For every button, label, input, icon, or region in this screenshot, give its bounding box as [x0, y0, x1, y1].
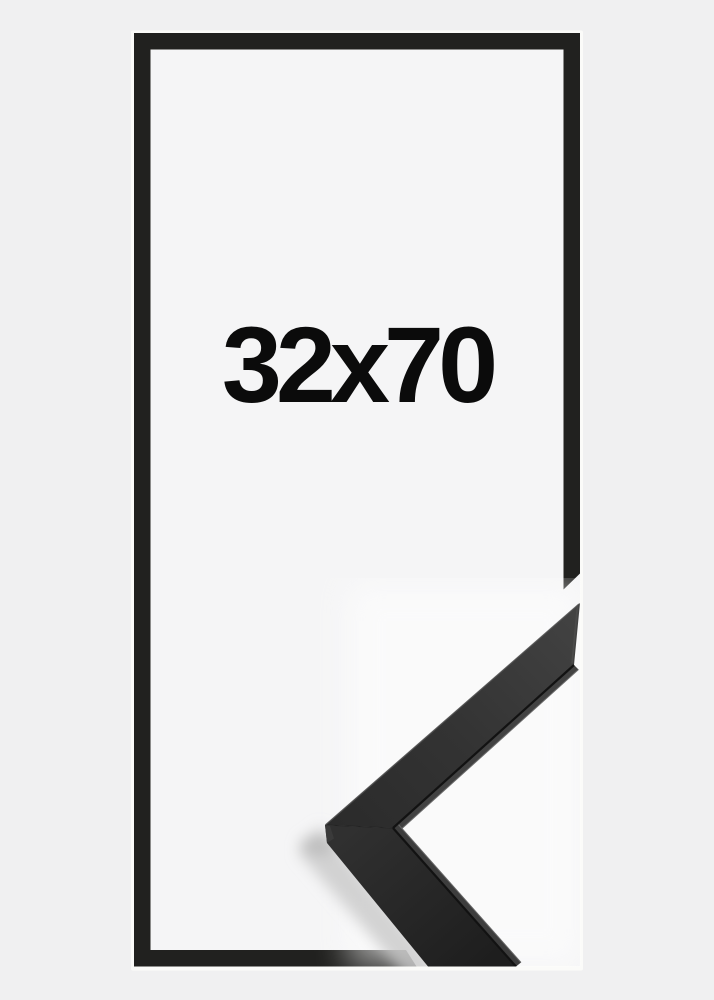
frame-outline-left: [134, 33, 151, 966]
frame-outline-right: [564, 33, 581, 590]
product-image: 32x70: [0, 0, 714, 1000]
frame-size-illustration: 32x70: [0, 0, 714, 1000]
size-label: 32x70: [222, 304, 494, 425]
frame-outline-top: [134, 33, 580, 50]
